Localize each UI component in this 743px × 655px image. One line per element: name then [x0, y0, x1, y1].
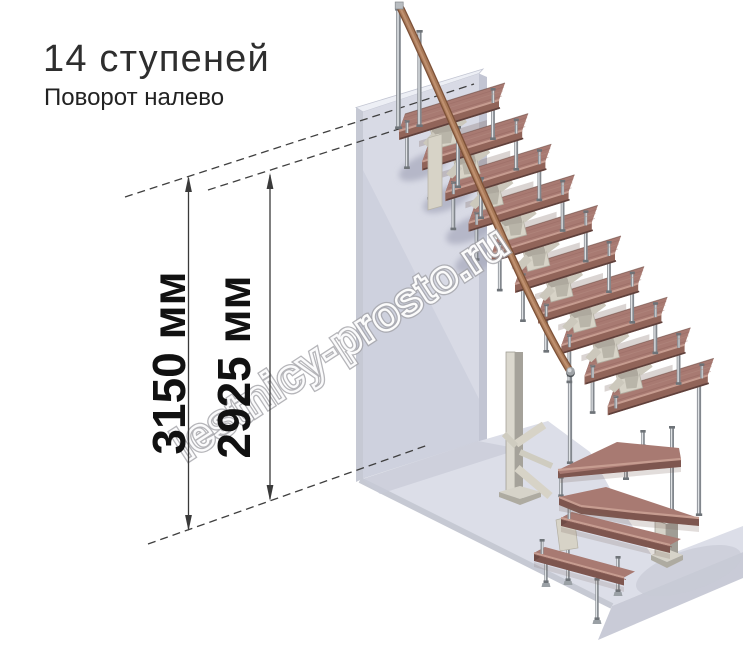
svg-text:2925 мм: 2925 мм: [208, 275, 260, 458]
svg-text:Поворот налево: Поворот налево: [44, 84, 224, 111]
svg-text:14 ступеней: 14 ступеней: [43, 38, 270, 80]
svg-text:3150 мм: 3150 мм: [143, 271, 195, 454]
